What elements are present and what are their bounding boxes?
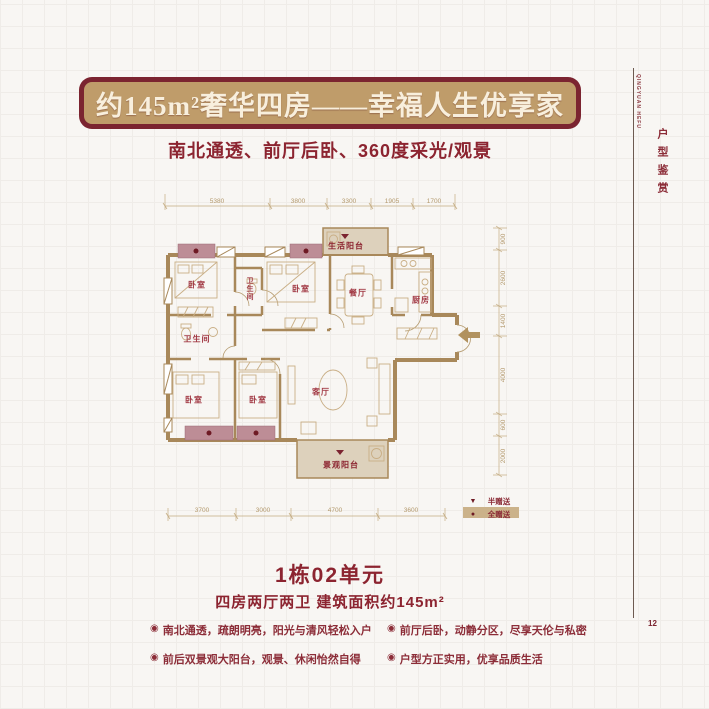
room-label-bedroom4: 卧室 (249, 395, 267, 406)
page-title: 约145m²奢华四房——幸福人生优享家 (96, 84, 564, 123)
dim-top-1: 5380 (210, 198, 225, 205)
room-label-dining: 餐厅 (349, 288, 367, 299)
dim-right-6: 2000 (500, 448, 507, 463)
brochure-page: 约145m²奢华四房——幸福人生优享家 南北通透、前厅后卧、360度采光/观景 (0, 0, 709, 709)
dim-right-2: 2600 (500, 270, 507, 285)
feature-item: ◉ 前厅后卧，动静分区，尽享天伦与私密 (387, 622, 587, 638)
room-label-life-balcony: 生活阳台 (328, 241, 364, 252)
legend: ▼ 半赠送 ● 全赠送 (463, 496, 519, 519)
sidebar-english-text: QINGYUAN HEFU (635, 74, 641, 118)
feature-text: 南北通透，疏朗明亮，阳光与清风轻松入户 (163, 622, 372, 638)
room-label-living: 客厅 (312, 387, 330, 398)
dim-bottom-1: 3700 (195, 507, 210, 514)
dim-right-5: 600 (500, 419, 507, 430)
unit-spec: 四房两厅两卫 建筑面积约145m² (0, 591, 660, 612)
sidebar-vertical-title: 户型鉴赏 (654, 128, 670, 200)
dim-top-3: 3300 (342, 198, 357, 205)
feature-item: ◉ 南北通透，疏朗明亮，阳光与清风轻松入户 (150, 622, 375, 638)
dim-top-5: 1700 (427, 198, 442, 205)
dim-right-3: 1400 (500, 313, 507, 328)
feature-bullet-icon: ◉ (150, 622, 159, 635)
entry-arrow-icon (458, 327, 480, 343)
dim-right-4: 4000 (500, 367, 507, 382)
dim-top-4: 1905 (385, 198, 400, 205)
feature-text: 前后双景观大阳台，观景、休闲怡然自得 (163, 651, 361, 667)
sidebar-divider (633, 68, 634, 618)
legend-full-marker-icon: ● (471, 511, 475, 518)
dim-bottom-4: 3600 (404, 507, 419, 514)
feature-list: ◉ 南北通透，疏朗明亮，阳光与清风轻松入户 ◉ 前厅后卧，动静分区，尽享天伦与私… (150, 622, 580, 667)
room-label-bedroom2: 卧室 (292, 284, 310, 295)
feature-item: ◉ 前后双景观大阳台，观景、休闲怡然自得 (150, 651, 375, 667)
feature-text: 前厅后卧，动静分区，尽享天伦与私密 (400, 622, 587, 638)
page-subtitle: 南北通透、前厅后卧、360度采光/观景 (0, 137, 660, 163)
room-label-view-balcony: 景观阳台 (323, 460, 359, 471)
unit-name: 1栋02单元 (0, 559, 660, 589)
dim-right-1: 900 (500, 233, 507, 244)
dim-bottom-3: 4700 (328, 507, 343, 514)
legend-half-marker-icon: ▼ (470, 498, 477, 505)
dim-top-2: 3800 (291, 198, 306, 205)
room-label-kitchen: 厨房 (412, 295, 430, 306)
feature-bullet-icon: ◉ (150, 651, 159, 664)
room-label-bathroom2: 卫生间 (244, 277, 254, 301)
outer-walls (168, 255, 457, 440)
page-number: 12 (648, 619, 657, 628)
feature-bullet-icon: ◉ (387, 651, 396, 664)
header-banner: 约145m²奢华四房——幸福人生优享家 (84, 82, 576, 124)
room-label-bathroom1: 卫生间 (184, 334, 211, 345)
room-label-bedroom1: 卧室 (188, 280, 206, 291)
legend-full-label: 全赠送 (487, 509, 511, 519)
feature-bullet-icon: ◉ (387, 622, 396, 635)
feature-text: 户型方正实用，优享品质生活 (400, 651, 543, 667)
dim-bottom-2: 3000 (256, 507, 271, 514)
legend-half-label: 半赠送 (488, 496, 511, 506)
room-label-bedroom3: 卧室 (185, 395, 203, 406)
feature-item: ◉ 户型方正实用，优享品质生活 (387, 651, 587, 667)
